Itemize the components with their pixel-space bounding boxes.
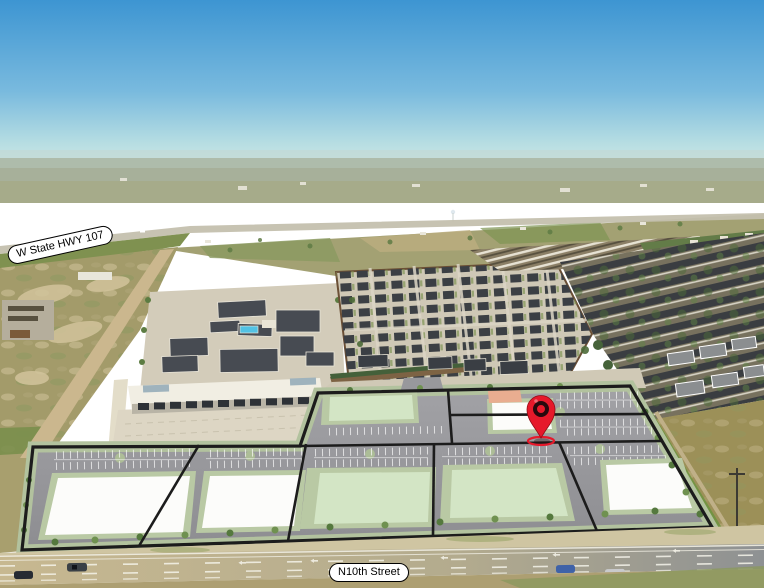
building-pad-2 [202,475,300,528]
building-pad-rear-1 [329,395,414,421]
location-pin-icon [527,396,555,445]
blue-car [556,565,575,573]
n10th-street-label: N10th Street [329,563,409,582]
building-pad-4 [450,468,568,518]
swimming-pool [240,326,258,333]
building-pad-salmon [488,390,522,403]
aerial-photo-canvas [0,0,764,588]
sky [0,0,764,166]
apartment-complex [139,283,345,392]
building-pad-1 [45,476,190,535]
horizon-city [0,158,764,222]
aerial-site-photo: W State HWY 107 N10th Street [0,0,764,588]
building-pad-3 [314,472,430,524]
